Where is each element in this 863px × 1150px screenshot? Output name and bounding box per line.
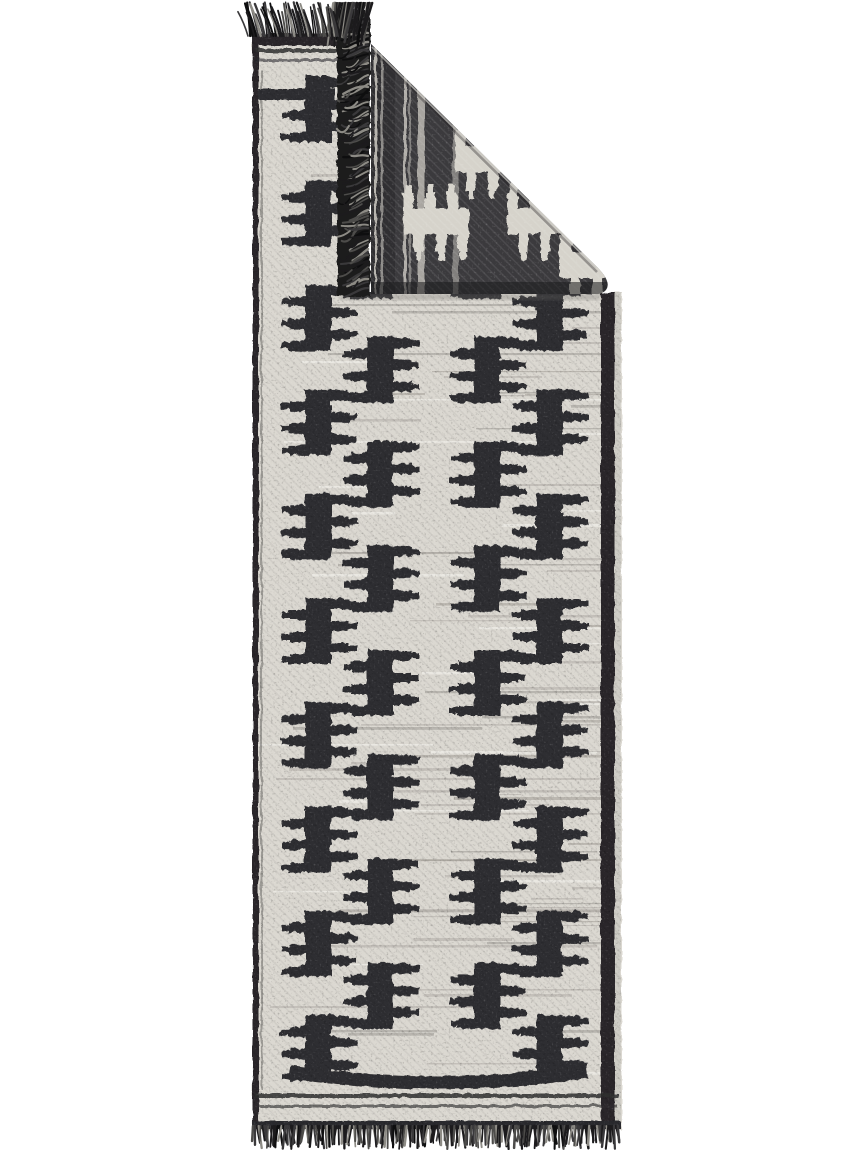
fringe-strand xyxy=(430,1126,431,1141)
weave-streak xyxy=(497,148,558,151)
fringe-strand xyxy=(377,1126,378,1144)
fringe-strand xyxy=(352,155,369,156)
back-speckle-texture xyxy=(336,40,616,300)
weave-streak xyxy=(453,129,557,131)
fringe-strand xyxy=(485,1126,486,1145)
weave-streak xyxy=(402,73,543,74)
fringe-strand xyxy=(393,1126,394,1148)
fold-shadow xyxy=(340,294,600,300)
fringe-strand xyxy=(346,1126,347,1142)
fringe-strand xyxy=(238,12,248,36)
fringe-strand xyxy=(342,1126,343,1144)
fringe-strand xyxy=(339,1126,340,1145)
weave-streak xyxy=(438,121,579,124)
pattern-motif xyxy=(511,75,587,141)
product-photo-rug xyxy=(0,0,863,1150)
fringe-bottom xyxy=(252,1126,619,1149)
fringe-strand xyxy=(385,1126,387,1147)
fringe-strand xyxy=(418,1126,419,1148)
fringe-strand xyxy=(318,1126,319,1147)
weave-streak xyxy=(440,109,612,110)
fringe-strand xyxy=(410,1126,411,1147)
fringe-strand xyxy=(322,1126,323,1144)
fringe-top xyxy=(238,2,340,36)
fringe-strand xyxy=(423,1126,424,1141)
fringe-strand xyxy=(370,1126,371,1144)
fringe-strand xyxy=(454,1126,455,1141)
fringe-strand xyxy=(614,1126,615,1149)
fringe-strand xyxy=(606,1126,609,1149)
fringe-strand xyxy=(465,1126,466,1146)
folded-corner-back xyxy=(336,40,624,303)
fringe-strand xyxy=(447,1126,448,1149)
rug-illustration xyxy=(0,0,863,1150)
flap-bottom-edge xyxy=(336,282,616,294)
fringe-strand xyxy=(595,1126,596,1142)
fringe-strand xyxy=(482,1126,483,1142)
fringe-strand xyxy=(475,1126,476,1146)
fringe-strand xyxy=(375,1126,377,1147)
fringe-strand xyxy=(329,1126,330,1147)
fringe-strand xyxy=(600,1126,601,1140)
fringe-strand xyxy=(467,1126,468,1145)
fringe-strand xyxy=(497,1126,498,1142)
fringe-strand xyxy=(252,1126,253,1141)
weave-streak xyxy=(477,102,612,103)
fringe-strand xyxy=(618,1126,619,1142)
fringe-strand xyxy=(260,1126,261,1141)
fringe-strand xyxy=(588,1126,589,1145)
fringe-strand xyxy=(521,1126,522,1149)
fringe-strand xyxy=(514,1126,515,1148)
fringe-fold-edge xyxy=(336,9,369,297)
